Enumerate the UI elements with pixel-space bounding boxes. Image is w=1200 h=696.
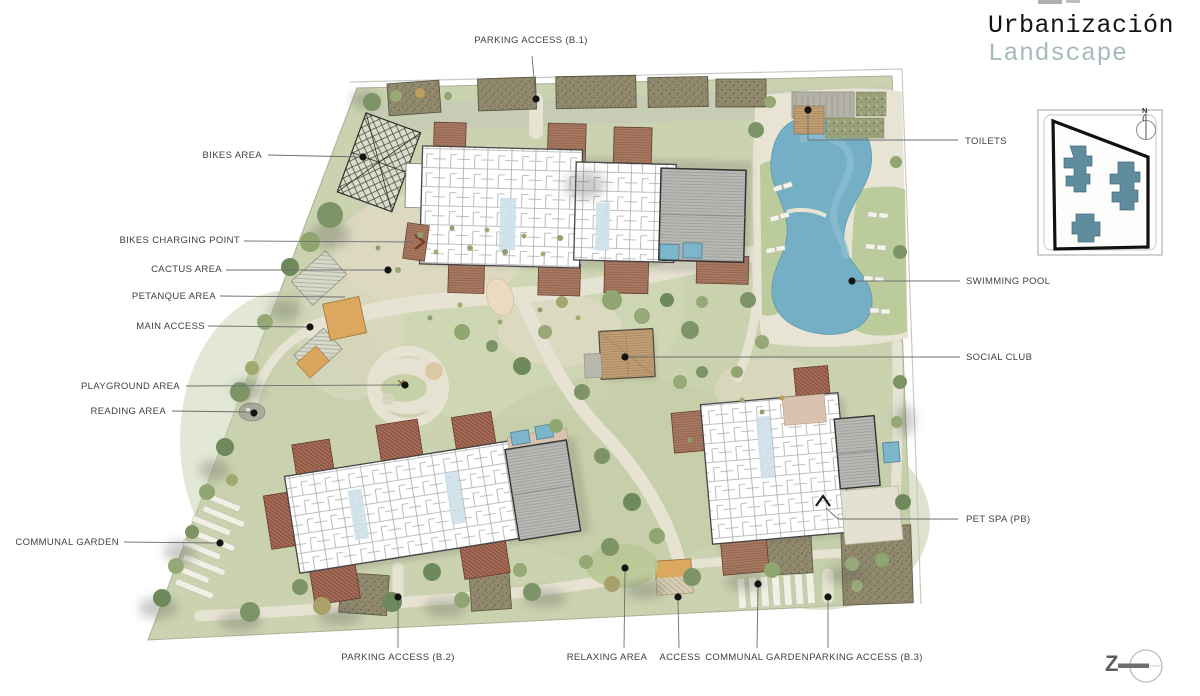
callout-main-access: MAIN ACCESS <box>136 321 205 332</box>
callout-communal-left: COMMUNAL GARDEN <box>15 537 119 548</box>
studio-logo <box>1118 650 1162 682</box>
callout-parking-b1: PARKING ACCESS (B.1) <box>474 35 587 46</box>
callout-relaxing: RELAXING AREA <box>567 652 648 663</box>
keyplan <box>1038 110 1162 255</box>
main-access-canopy <box>323 296 367 340</box>
north-label: N <box>1142 106 1147 115</box>
callout-parking-b2: PARKING ACCESS (B.2) <box>341 652 454 663</box>
callout-toilets: TOILETS <box>965 136 1007 147</box>
callout-petanque: PETANQUE AREA <box>132 291 216 302</box>
callout-bikes-charging: BIKES CHARGING POINT <box>120 235 241 246</box>
callout-communal-bottom: COMMUNAL GARDEN <box>705 652 809 663</box>
callout-playground: PLAYGROUND AREA <box>81 381 180 392</box>
sheet-title: Urbanización Landscape <box>988 12 1174 68</box>
callout-parking-b3: PARKING ACCESS (B.3) <box>809 652 922 663</box>
title-line-2: Landscape <box>988 40 1174 68</box>
logo-letter: Z <box>1105 651 1118 677</box>
callout-bikes-area: BIKES AREA <box>203 150 262 161</box>
callout-reading: READING AREA <box>91 406 166 417</box>
callout-social: SOCIAL CLUB <box>966 352 1032 363</box>
callout-petspa: PET SPA (PB) <box>966 514 1031 525</box>
callout-access: ACCESS <box>659 652 700 663</box>
landscape-masterplan-sheet: Urbanización Landscape N Z PARKING ACCES… <box>0 0 1200 696</box>
site-plan-drawing <box>0 0 1200 696</box>
cropped-top-logo <box>1038 0 1080 4</box>
pool-zone <box>753 89 908 347</box>
callout-pool: SWIMMING POOL <box>966 276 1050 287</box>
title-line-1: Urbanización <box>988 12 1174 40</box>
toilets-structure <box>792 92 886 138</box>
callout-cactus: CACTUS AREA <box>151 264 222 275</box>
